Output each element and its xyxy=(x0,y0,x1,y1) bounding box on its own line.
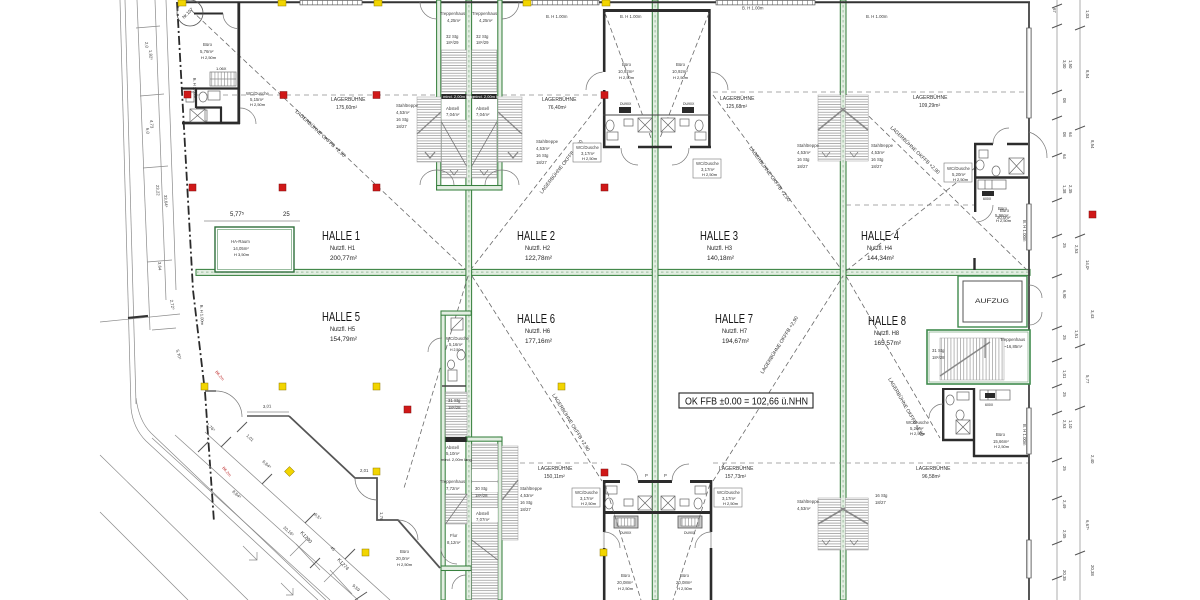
svg-text:mind. 2,00m lang: mind. 2,00m lang xyxy=(441,457,472,462)
svg-text:194,67m²: 194,67m² xyxy=(722,339,749,345)
svg-text:2,40: 2,40 xyxy=(1090,455,1095,464)
svg-text:Treppenhaus: Treppenhaus xyxy=(440,479,465,484)
svg-text:Stahltreppe: Stahltreppe xyxy=(797,143,820,148)
svg-text:18/27: 18/27 xyxy=(520,507,531,512)
svg-text:157,73m²: 157,73m² xyxy=(725,474,746,480)
svg-text:Nutzfl. H1: Nutzfl. H1 xyxy=(330,246,356,252)
svg-text:Büro: Büro xyxy=(622,62,632,67)
svg-text:AUFZUG: AUFZUG xyxy=(975,299,1009,305)
svg-text:20,08m²: 20,08m² xyxy=(676,580,692,585)
svg-text:~16,85m²: ~16,85m² xyxy=(1004,344,1023,349)
svg-text:3,01: 3,01 xyxy=(263,404,272,409)
svg-text:10,92m²: 10,92m² xyxy=(618,69,634,74)
svg-text:64: 64 xyxy=(1062,154,1067,159)
svg-text:08: 08 xyxy=(1062,98,1067,103)
svg-text:4,53m²: 4,53m² xyxy=(797,506,811,511)
svg-text:HALLE 8: HALLE 8 xyxy=(868,314,906,328)
svg-text:31 Stg: 31 Stg xyxy=(932,348,945,353)
svg-text:14,0⁵: 14,0⁵ xyxy=(1085,260,1090,270)
svg-text:B. H 1.00m: B. H 1.00m xyxy=(742,6,764,11)
svg-text:23,22: 23,22 xyxy=(155,185,161,197)
svg-text:HALLE 1: HALLE 1 xyxy=(322,229,360,243)
svg-text:Büro: Büro xyxy=(676,62,686,67)
svg-text:Abstell: Abstell xyxy=(446,445,459,450)
svg-text:5,10m²: 5,10m² xyxy=(446,451,460,456)
svg-text:25: 25 xyxy=(1062,466,1067,471)
svg-text:4,53m²: 4,53m² xyxy=(396,110,410,115)
svg-text:Büro: Büro xyxy=(203,42,213,47)
svg-text:31 Stg: 31 Stg xyxy=(448,398,461,403)
svg-text:H 2,50m: H 2,50m xyxy=(723,501,739,506)
svg-text:08: 08 xyxy=(1062,132,1067,137)
svg-text:1,50: 1,50 xyxy=(1068,60,1073,69)
svg-text:Büro: Büro xyxy=(680,573,690,578)
svg-text:2,01: 2,01 xyxy=(360,468,369,473)
svg-text:mind. 2,00m lang: mind. 2,00m lang xyxy=(443,94,474,99)
svg-text:6,90: 6,90 xyxy=(1062,290,1067,299)
svg-text:Stahltreppe: Stahltreppe xyxy=(797,499,820,504)
svg-text:H 2,50m: H 2,50m xyxy=(673,75,689,80)
svg-text:20,38: 20,38 xyxy=(1090,565,1095,576)
svg-text:1,10: 1,10 xyxy=(1068,420,1073,429)
svg-text:18/27: 18/27 xyxy=(871,164,882,169)
svg-text:2,49: 2,49 xyxy=(1062,500,1067,509)
svg-text:600X: 600X xyxy=(983,197,992,201)
svg-text:1,82⁵: 1,82⁵ xyxy=(148,50,154,61)
svg-text:25: 25 xyxy=(283,212,290,218)
svg-text:LAGERBÜHNE: LAGERBÜHNE xyxy=(913,94,948,101)
svg-text:Büro: Büro xyxy=(621,573,631,578)
svg-text:18/27: 18/27 xyxy=(536,160,547,165)
svg-text:165,57m²: 165,57m² xyxy=(874,341,901,347)
svg-text:Stahltreppe: Stahltreppe xyxy=(871,143,894,148)
svg-text:DU90X: DU90X xyxy=(683,102,695,106)
svg-text:H 2,50m: H 2,50m xyxy=(201,55,217,60)
svg-text:122,78m²: 122,78m² xyxy=(525,256,552,262)
svg-text:B. H 1.00m: B. H 1.00m xyxy=(866,14,888,19)
svg-text:B. H 1.00m: B. H 1.00m xyxy=(1022,220,1027,242)
svg-text:H 2,50m: H 2,50m xyxy=(618,586,634,591)
svg-text:H 2,50m: H 2,50m xyxy=(581,501,597,506)
svg-text:WC/Dusche: WC/Dusche xyxy=(947,166,971,171)
svg-text:B. H 1.00m: B. H 1.00m xyxy=(546,14,568,19)
svg-text:20,0m²: 20,0m² xyxy=(396,556,410,561)
svg-text:H 2,50m: H 2,50m xyxy=(250,102,266,107)
svg-text:8,54: 8,54 xyxy=(1090,140,1095,149)
svg-text:Treppenhaus: Treppenhaus xyxy=(472,11,497,16)
svg-text:1,38: 1,38 xyxy=(1062,185,1067,194)
svg-text:18⁸/29: 18⁸/29 xyxy=(446,40,459,45)
svg-text:109,29m²: 109,29m² xyxy=(919,103,940,109)
svg-text:8,12m²: 8,12m² xyxy=(447,540,461,545)
svg-text:2,53: 2,53 xyxy=(1062,420,1067,429)
svg-text:HA-Raum: HA-Raum xyxy=(231,239,250,244)
svg-text:Büro: Büro xyxy=(1000,208,1010,213)
svg-text:4,53m²: 4,53m² xyxy=(536,146,550,151)
svg-text:2,0: 2,0 xyxy=(144,42,149,49)
svg-text:16 Stg: 16 Stg xyxy=(871,157,884,162)
svg-text:16 Stg: 16 Stg xyxy=(520,500,533,505)
svg-text:3,00: 3,00 xyxy=(1062,60,1067,69)
svg-text:WC/Dusche: WC/Dusche xyxy=(696,161,720,166)
svg-text:16 Stg: 16 Stg xyxy=(797,157,810,162)
svg-text:16 Stg: 16 Stg xyxy=(875,493,888,498)
svg-text:P: P xyxy=(645,473,648,478)
svg-text:H 2,50m: H 2,50m xyxy=(994,444,1010,449)
svg-text:LAGERBÜHNE: LAGERBÜHNE xyxy=(538,465,573,472)
svg-text:Abstell: Abstell xyxy=(476,511,489,516)
svg-text:Nutzfl. H8: Nutzfl. H8 xyxy=(874,331,900,337)
svg-text:HALLE 4: HALLE 4 xyxy=(861,229,899,243)
svg-text:5,77: 5,77 xyxy=(1085,375,1090,384)
svg-text:LAGERBÜHNE: LAGERBÜHNE xyxy=(719,465,754,472)
svg-text:Nutzfl. H3: Nutzfl. H3 xyxy=(707,246,733,252)
svg-text:H 3,50m: H 3,50m xyxy=(234,252,250,257)
svg-text:LAGERBÜHNE: LAGERBÜHNE xyxy=(916,465,951,472)
svg-text:Stahltreppe: Stahltreppe xyxy=(536,139,559,144)
svg-text:14,05m²: 14,05m² xyxy=(233,246,249,251)
svg-text:96,58m²: 96,58m² xyxy=(922,474,941,480)
svg-text:5,16m²: 5,16m² xyxy=(449,342,463,347)
svg-text:4,53m²: 4,53m² xyxy=(871,150,885,155)
svg-text:Nutzfl. H5: Nutzfl. H5 xyxy=(330,327,356,333)
svg-text:64: 64 xyxy=(1068,132,1073,137)
svg-text:DU90X: DU90X xyxy=(620,102,632,106)
svg-text:1.06X: 1.06X xyxy=(216,66,227,71)
svg-text:B. H 1.00m: B. H 1.00m xyxy=(1022,424,1027,446)
svg-text:Flur: Flur xyxy=(450,533,458,538)
svg-text:H 2,50m: H 2,50m xyxy=(619,75,635,80)
svg-text:WC/Dusche: WC/Dusche xyxy=(575,490,599,495)
svg-text:WC/Dusche: WC/Dusche xyxy=(576,145,600,150)
svg-text:WC/Dusche: WC/Dusche xyxy=(246,91,270,96)
svg-text:H 2,50m: H 2,50m xyxy=(910,431,926,436)
svg-text:Nutzfl. H7: Nutzfl. H7 xyxy=(722,329,748,335)
svg-text:1,03: 1,03 xyxy=(1085,10,1090,19)
svg-text:175,60m²: 175,60m² xyxy=(336,105,357,111)
svg-text:Abstell: Abstell xyxy=(476,106,489,111)
svg-text:B. H 1.00m: B. H 1.00m xyxy=(620,14,642,19)
svg-text:140,18m²: 140,18m² xyxy=(707,256,734,262)
svg-text:7,04m²: 7,04m² xyxy=(446,112,460,117)
svg-text:10,92m²: 10,92m² xyxy=(672,69,688,74)
svg-text:HALLE 7: HALLE 7 xyxy=(715,312,753,326)
svg-text:25: 25 xyxy=(1062,243,1067,248)
svg-text:18⁸/28: 18⁸/28 xyxy=(448,405,461,410)
svg-text:H 2,50m: H 2,50m xyxy=(953,177,969,182)
svg-text:Stahltreppe: Stahltreppe xyxy=(520,486,543,491)
svg-text:H 2,50m: H 2,50m xyxy=(702,172,718,177)
svg-text:5,77⁵: 5,77⁵ xyxy=(230,211,245,218)
svg-text:1,76: 1,76 xyxy=(379,512,384,521)
svg-text:Büro: Büro xyxy=(996,432,1006,437)
svg-text:Abstell: Abstell xyxy=(446,106,459,111)
svg-text:177,16m²: 177,16m² xyxy=(525,339,552,345)
svg-text:4,53m²: 4,53m² xyxy=(797,150,811,155)
svg-text:2,05: 2,05 xyxy=(1062,530,1067,539)
svg-text:7,04m²: 7,04m² xyxy=(476,112,490,117)
svg-text:Treppenhaus: Treppenhaus xyxy=(1000,337,1025,342)
svg-text:DU90X: DU90X xyxy=(620,531,632,535)
svg-text:6,0: 6,0 xyxy=(145,128,150,135)
svg-text:1,01: 1,01 xyxy=(1062,370,1067,379)
svg-text:LAGERBÜHNE: LAGERBÜHNE xyxy=(542,96,577,103)
svg-text:25: 25 xyxy=(1062,392,1067,397)
svg-text:154,79m²: 154,79m² xyxy=(330,337,357,343)
svg-text:7,72m²: 7,72m² xyxy=(446,486,460,491)
svg-text:18⁸/28: 18⁸/28 xyxy=(932,355,945,360)
svg-text:HALLE 5: HALLE 5 xyxy=(322,310,360,324)
svg-text:OK FFB ±0.00 = 102,66 ü.NHN: OK FFB ±0.00 = 102,66 ü.NHN xyxy=(685,397,808,408)
svg-text:67: 67 xyxy=(1052,8,1057,13)
svg-text:4,53m²: 4,53m² xyxy=(520,493,534,498)
svg-text:Nutzfl. H4: Nutzfl. H4 xyxy=(867,246,893,252)
svg-text:H 2,50m: H 2,50m xyxy=(582,156,598,161)
svg-text:600X: 600X xyxy=(985,403,994,407)
svg-text:200,77m²: 200,77m² xyxy=(330,256,357,262)
svg-text:16 Stg: 16 Stg xyxy=(536,153,549,158)
svg-text:2,35: 2,35 xyxy=(1068,185,1073,194)
svg-text:HALLE 3: HALLE 3 xyxy=(700,229,738,243)
svg-text:16 Stg: 16 Stg xyxy=(396,117,409,122)
svg-text:P: P xyxy=(664,473,667,478)
svg-text:Nutzfl. H2: Nutzfl. H2 xyxy=(525,246,551,252)
svg-text:5,76m²: 5,76m² xyxy=(200,49,214,54)
svg-text:18⁸/28: 18⁸/28 xyxy=(475,493,488,498)
svg-text:4,25m²: 4,25m² xyxy=(479,18,493,23)
svg-text:6,67⁵: 6,67⁵ xyxy=(1085,520,1090,530)
svg-text:3,64: 3,64 xyxy=(157,262,163,271)
svg-text:HALLE 6: HALLE 6 xyxy=(517,312,555,326)
svg-text:WC/Dusche: WC/Dusche xyxy=(717,490,741,495)
svg-text:18/27: 18/27 xyxy=(797,164,808,169)
svg-text:H 2,50m: H 2,50m xyxy=(677,586,693,591)
svg-text:WC/Dusche: WC/Dusche xyxy=(446,336,470,341)
svg-text:8,54: 8,54 xyxy=(1085,70,1090,79)
svg-text:76,40m²: 76,40m² xyxy=(548,105,567,111)
svg-text:7,07m²: 7,07m² xyxy=(476,517,490,522)
svg-text:32 Stg: 32 Stg xyxy=(476,34,489,39)
svg-text:18⁸/29: 18⁸/29 xyxy=(476,40,489,45)
svg-text:4,25m²: 4,25m² xyxy=(447,18,461,23)
svg-text:HALLE 2: HALLE 2 xyxy=(517,229,555,243)
svg-text:144,34m²: 144,34m² xyxy=(867,256,894,262)
svg-text:LAGERBÜHNE: LAGERBÜHNE xyxy=(720,95,755,102)
svg-text:Treppenhaus: Treppenhaus xyxy=(440,11,465,16)
svg-text:1,51: 1,51 xyxy=(1074,330,1079,339)
svg-text:125,68m²: 125,68m² xyxy=(726,104,747,110)
svg-text:25: 25 xyxy=(1062,335,1067,340)
svg-text:LAGERBÜHNE: LAGERBÜHNE xyxy=(331,96,366,103)
svg-text:Nutzfl. H6: Nutzfl. H6 xyxy=(525,329,551,335)
svg-text:20,08m²: 20,08m² xyxy=(617,580,633,585)
svg-text:Stahltreppe: Stahltreppe xyxy=(396,103,419,108)
svg-text:H 2,50m: H 2,50m xyxy=(397,562,413,567)
svg-text:150,11m²: 150,11m² xyxy=(544,474,565,480)
svg-text:20,35: 20,35 xyxy=(1062,570,1067,581)
svg-text:33,64⁵: 33,64⁵ xyxy=(163,195,169,208)
svg-text:30 Stg: 30 Stg xyxy=(475,486,488,491)
svg-text:Büro: Büro xyxy=(400,549,410,554)
svg-text:18/27: 18/27 xyxy=(396,124,407,129)
svg-text:18/27: 18/27 xyxy=(875,500,886,505)
svg-text:WC/Dusche: WC/Dusche xyxy=(906,420,930,425)
svg-text:20,0m²: 20,0m² xyxy=(997,215,1011,220)
svg-text:32 Stg: 32 Stg xyxy=(446,34,459,39)
svg-text:2,53: 2,53 xyxy=(1074,245,1079,254)
svg-text:3,43: 3,43 xyxy=(1090,310,1095,319)
